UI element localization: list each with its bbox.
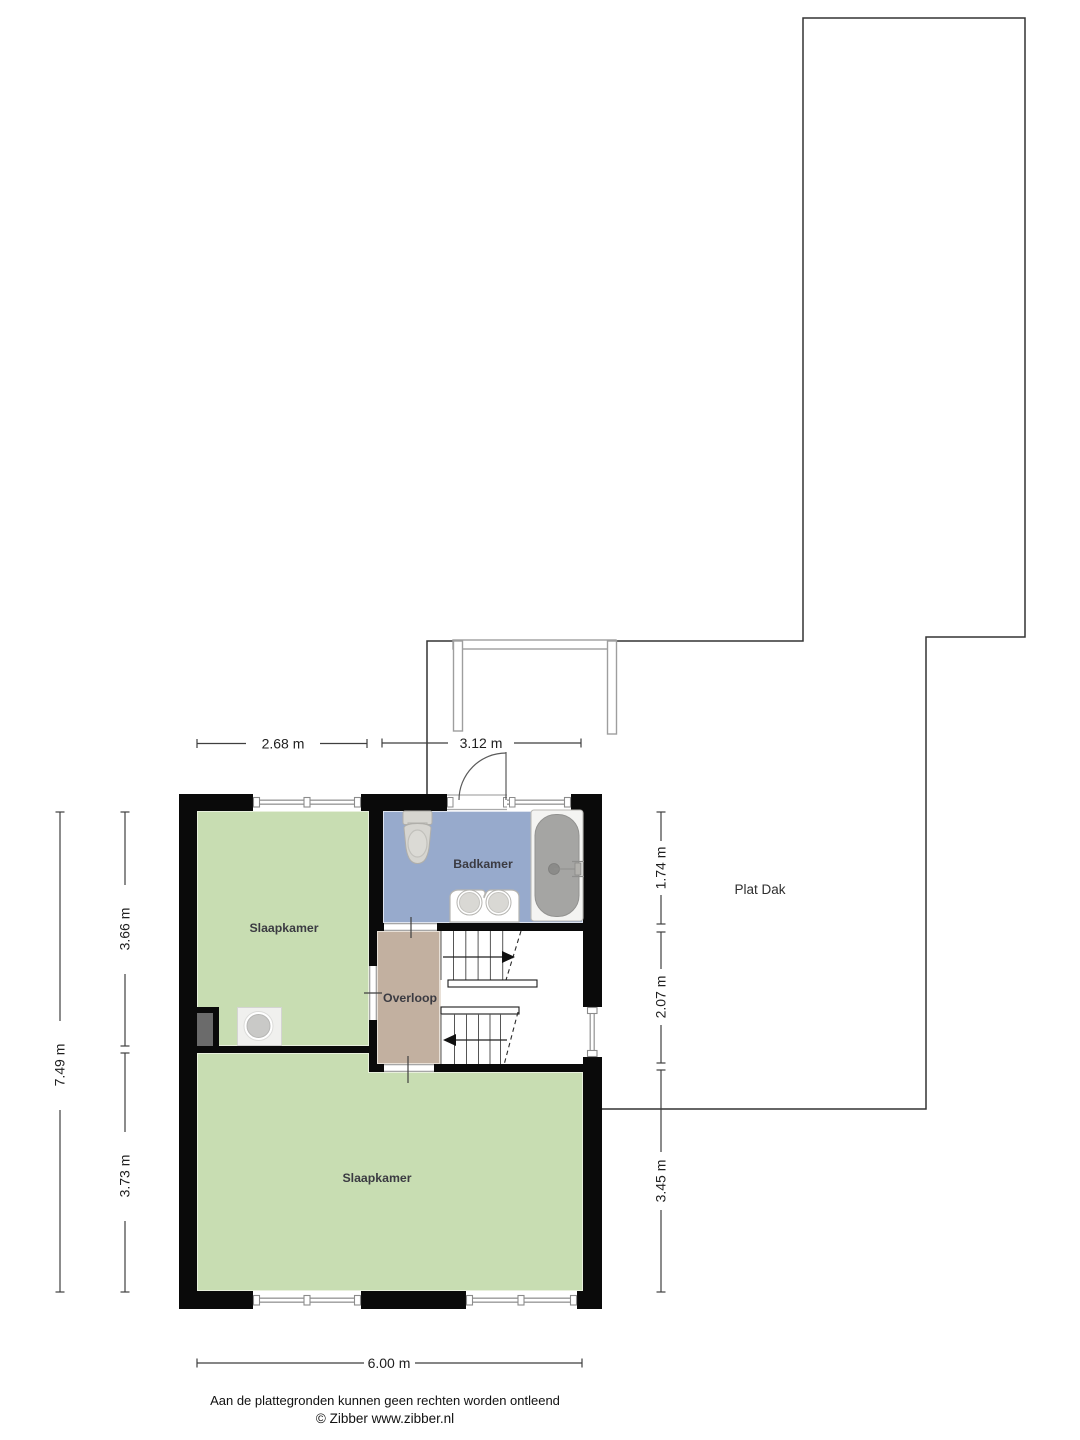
svg-text:© Zibber www.zibber.nl: © Zibber www.zibber.nl xyxy=(316,1411,454,1426)
svg-text:Slaapkamer: Slaapkamer xyxy=(249,921,318,935)
svg-text:3.73 m: 3.73 m xyxy=(117,1155,133,1198)
svg-text:Badkamer: Badkamer xyxy=(453,857,513,871)
svg-text:3.66 m: 3.66 m xyxy=(117,908,133,951)
svg-text:3.45 m: 3.45 m xyxy=(653,1160,669,1203)
svg-text:2.07 m: 2.07 m xyxy=(653,976,669,1019)
svg-text:7.49 m: 7.49 m xyxy=(52,1044,68,1087)
svg-text:Plat Dak: Plat Dak xyxy=(734,882,785,897)
svg-text:6.00 m: 6.00 m xyxy=(368,1355,411,1371)
svg-text:3.12 m: 3.12 m xyxy=(460,735,503,751)
svg-text:Overloop: Overloop xyxy=(383,991,437,1005)
svg-text:Slaapkamer: Slaapkamer xyxy=(342,1171,411,1185)
svg-text:1.74 m: 1.74 m xyxy=(653,847,669,890)
svg-text:Aan de plattegronden kunnen ge: Aan de plattegronden kunnen geen rechten… xyxy=(210,1393,560,1408)
svg-text:2.68 m: 2.68 m xyxy=(262,736,305,752)
